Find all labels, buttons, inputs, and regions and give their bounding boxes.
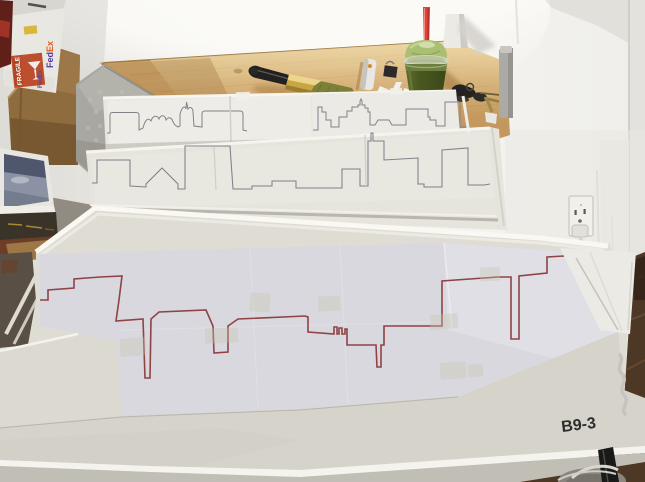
svg-text:FedEx: FedEx	[38, 69, 44, 88]
svg-text:FedEx: FedEx	[45, 41, 55, 68]
